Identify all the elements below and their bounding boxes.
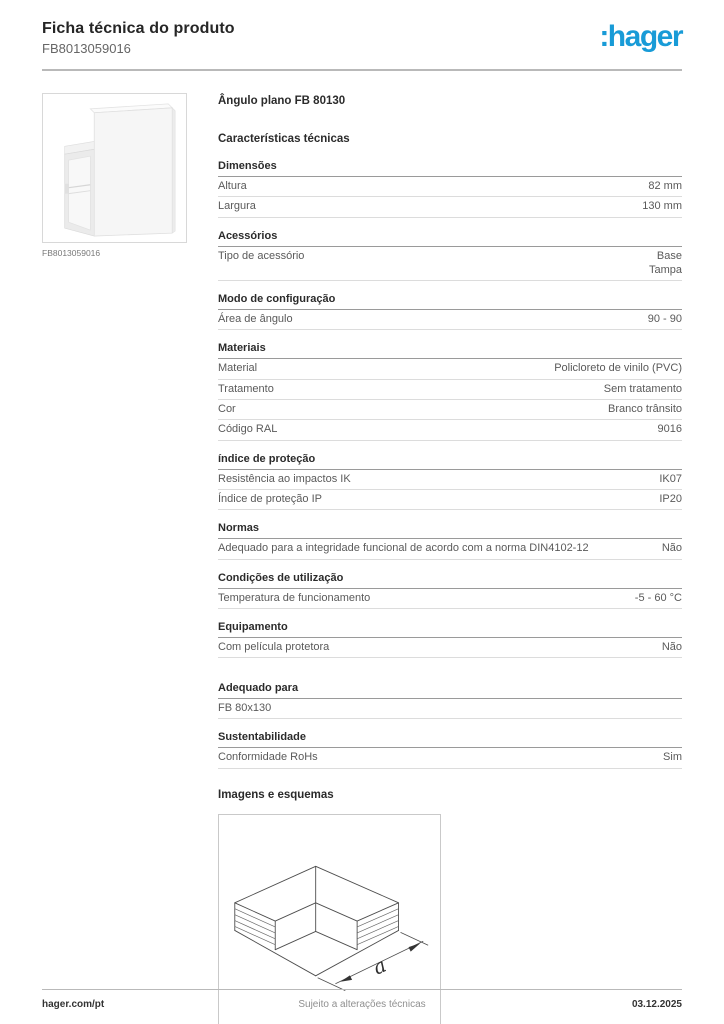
spec-value: IK07: [659, 472, 682, 486]
spec-row: Resistência ao impactos IKIK07: [218, 470, 682, 490]
spec-section-title: índice de proteção: [218, 453, 682, 470]
spec-value: Policloreto de vinilo (PVC): [554, 361, 682, 375]
spec-label: Largura: [218, 199, 268, 213]
spec-row: Índice de proteção IPIP20: [218, 490, 682, 510]
left-column: FB8013059016: [42, 93, 218, 1024]
page-header: Ficha técnica do produto FB8013059016 :h…: [42, 20, 682, 56]
spec-section-title: Acessórios: [218, 230, 682, 247]
spec-label: Área de ângulo: [218, 312, 305, 326]
spec-row: Tipo de acessórioBaseTampa: [218, 247, 682, 282]
spec-row: Área de ângulo90 - 90: [218, 310, 682, 330]
spec-value: 82 mm: [648, 179, 682, 193]
spec-section: EquipamentoCom película protetoraNão: [218, 621, 682, 658]
spec-section-title: Condições de utilização: [218, 572, 682, 589]
spec-value: Sem tratamento: [604, 382, 682, 396]
page-title: Ficha técnica do produto: [42, 20, 235, 38]
spec-section: Modo de configuraçãoÁrea de ângulo90 - 9…: [218, 293, 682, 330]
spec-section-title: Equipamento: [218, 621, 682, 638]
spec-row: FB 80x130: [218, 699, 682, 719]
footer-row: hager.com/pt Sujeito a alterações técnic…: [42, 999, 682, 1010]
header-divider: [42, 69, 682, 71]
spec-section: Condições de utilizaçãoTemperatura de fu…: [218, 572, 682, 609]
spec-label: Tratamento: [218, 382, 286, 396]
spec-label: Código RAL: [218, 422, 289, 436]
spec-label: FB 80x130: [218, 701, 283, 715]
spec-value: -5 - 60 °C: [635, 591, 682, 605]
spec-section: SustentabilidadeConformidade RoHsSim: [218, 731, 682, 768]
spec-section-title: Dimensões: [218, 160, 682, 177]
images-section-title: Imagens e esquemas: [218, 789, 682, 801]
spec-row: CorBranco trânsito: [218, 400, 682, 420]
footer-divider: [42, 989, 682, 990]
spec-label: Adequado para a integridade funcional de…: [218, 541, 601, 555]
spec-value: Não: [662, 541, 682, 555]
spec-label: Resistência ao impactos IK: [218, 472, 363, 486]
spec-section: índice de proteçãoResistência ao impacto…: [218, 453, 682, 511]
spec-section-title: Adequado para: [218, 682, 682, 699]
footer-note: Sujeito a alterações técnicas: [230, 999, 494, 1010]
header-text-block: Ficha técnica do produto FB8013059016: [42, 20, 235, 56]
spec-row: Largura130 mm: [218, 197, 682, 217]
spec-row: Com película protetoraNão: [218, 638, 682, 658]
spec-row: MaterialPolicloreto de vinilo (PVC): [218, 359, 682, 379]
product-photo: [43, 94, 186, 242]
spec-section-title: Sustentabilidade: [218, 731, 682, 748]
spec-label: Com película protetora: [218, 640, 341, 654]
characteristics-title: Características técnicas: [218, 133, 682, 145]
spec-row: Altura82 mm: [218, 177, 682, 197]
spec-value: 90 - 90: [648, 312, 682, 326]
spec-section: Adequado paraFB 80x130: [218, 682, 682, 719]
spec-label: Altura: [218, 179, 259, 193]
spec-label: Temperatura de funcionamento: [218, 591, 382, 605]
spec-label: Índice de proteção IP: [218, 492, 334, 506]
right-column: Ângulo plano FB 80130 Características té…: [218, 93, 682, 1024]
spec-row: TratamentoSem tratamento: [218, 380, 682, 400]
spec-value: 9016: [658, 422, 682, 436]
spec-value: 130 mm: [642, 199, 682, 213]
spec-value: IP20: [659, 492, 682, 506]
spec-label: Conformidade RoHs: [218, 750, 330, 764]
product-name: Ângulo plano FB 80130: [218, 95, 682, 107]
spec-section-title: Materiais: [218, 342, 682, 359]
product-photo-caption: FB8013059016: [42, 248, 218, 258]
spec-label: Tipo de acessório: [218, 249, 316, 263]
spec-value: Não: [662, 640, 682, 654]
spec-row: Conformidade RoHsSim: [218, 748, 682, 768]
spec-value: BaseTampa: [649, 249, 682, 278]
spec-label: Cor: [218, 402, 248, 416]
footer-url: hager.com/pt: [42, 999, 230, 1010]
spec-row: Código RAL9016: [218, 420, 682, 440]
content-area: FB8013059016 Ângulo plano FB 80130 Carac…: [42, 93, 682, 1024]
product-reference: FB8013059016: [42, 41, 235, 56]
dimension-label: a: [370, 953, 390, 979]
spec-row: Temperatura de funcionamento-5 - 60 °C: [218, 589, 682, 609]
page-footer: hager.com/pt Sujeito a alterações técnic…: [42, 989, 682, 1010]
spec-value: Sim: [663, 750, 682, 764]
spec-sections: DimensõesAltura82 mmLargura130 mmAcessór…: [218, 160, 682, 769]
spec-section: AcessóriosTipo de acessórioBaseTampa: [218, 230, 682, 282]
spec-value: Branco trânsito: [608, 402, 682, 416]
spec-row: Adequado para a integridade funcional de…: [218, 539, 682, 559]
datasheet-page: Ficha técnica do produto FB8013059016 :h…: [0, 0, 724, 1024]
spec-section: DimensõesAltura82 mmLargura130 mm: [218, 160, 682, 218]
product-photo-box: [42, 93, 187, 243]
spec-section: MateriaisMaterialPolicloreto de vinilo (…: [218, 342, 682, 440]
spec-section: NormasAdequado para a integridade funcio…: [218, 522, 682, 559]
spec-section-title: Modo de configuração: [218, 293, 682, 310]
spec-label: Material: [218, 361, 269, 375]
spec-section-title: Normas: [218, 522, 682, 539]
hager-logo: :hager: [599, 22, 682, 52]
footer-date: 03.12.2025: [494, 999, 682, 1010]
